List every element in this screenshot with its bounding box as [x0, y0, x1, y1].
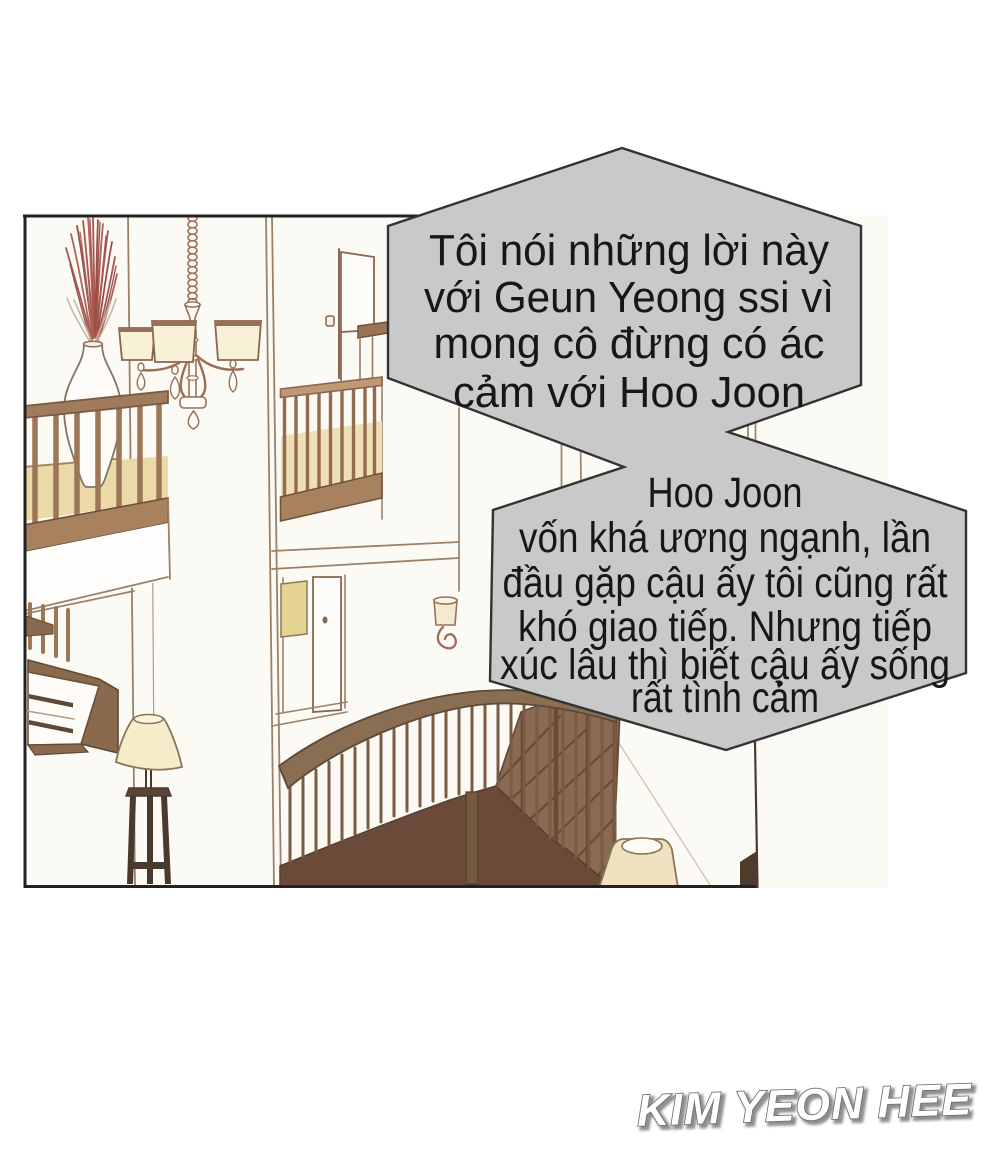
svg-text:vốn khá ương ngạnh, lần: vốn khá ương ngạnh, lần	[519, 514, 931, 562]
svg-text:rất tình cảm: rất tình cảm	[631, 674, 819, 722]
svg-text:Hoo Joon: Hoo Joon	[648, 469, 803, 517]
svg-text:mong cô đừng có ác: mong cô đừng có ác	[434, 319, 825, 368]
svg-text:Tôi nói những lời này: Tôi nói những lời này	[429, 226, 829, 275]
svg-text:đầu gặp cậu ấy tôi cũng rất: đầu gặp cậu ấy tôi cũng rất	[503, 559, 948, 607]
svg-text:cảm với Hoo Joon: cảm với Hoo Joon	[453, 368, 805, 417]
svg-text:với Geun Yeong ssi vì: với Geun Yeong ssi vì	[424, 273, 834, 322]
